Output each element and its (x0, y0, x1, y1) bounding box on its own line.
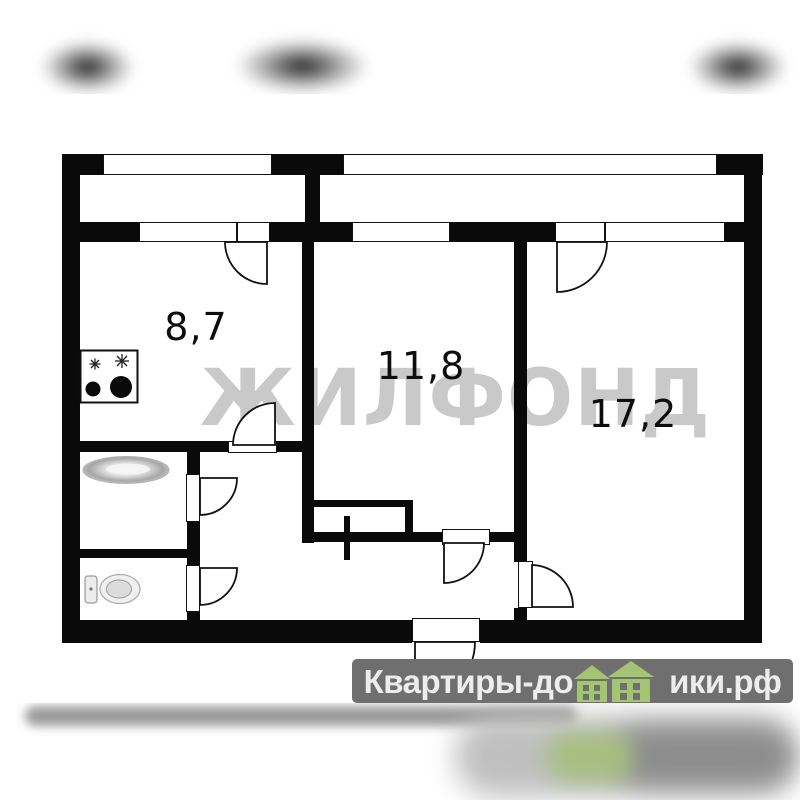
floor-plan-image: ЖИЛФОНД (0, 0, 800, 800)
room-right-area-label: 17,2 (589, 392, 678, 436)
wall-segment (302, 532, 442, 542)
kitchen-balcony-door-swing (225, 242, 267, 284)
wall-segment (717, 154, 763, 175)
toilet-door-swing (200, 568, 237, 605)
closet-wall (308, 500, 412, 507)
wall-segment (187, 522, 200, 566)
logo-text-left: Квартиры-до (364, 665, 573, 698)
house-icon (574, 660, 668, 702)
bathtub-icon (83, 457, 169, 484)
blurred-top-margin (0, 0, 800, 94)
kitchen-window (139, 222, 270, 242)
wall-segment (744, 175, 762, 643)
room-middle-door-swing (444, 543, 484, 583)
blur-blob (40, 40, 135, 94)
balcony-window (103, 154, 272, 175)
wall-segment (187, 443, 200, 475)
wall-segment (277, 441, 314, 452)
wall-segment (62, 441, 228, 452)
toilet-door-leaf (186, 565, 200, 612)
logo-banner: Квартиры-до ики.рф (352, 659, 793, 703)
blur-blob (612, 727, 792, 785)
kitchen-door-sill (228, 441, 277, 453)
wall-segment (270, 222, 352, 242)
wall-segment (490, 532, 527, 542)
wall-segment (62, 620, 412, 643)
closet-wall (405, 500, 413, 542)
wall-segment (80, 222, 139, 242)
wall-segment (725, 222, 744, 242)
wall-segment (450, 222, 555, 242)
blur-blob (235, 38, 370, 94)
wall-segment (514, 242, 527, 562)
room-middle-door-sill (442, 529, 490, 545)
wall-segment (187, 612, 200, 620)
blur-blob (688, 40, 788, 94)
balcony-window (343, 154, 717, 175)
room-right-door-swing (532, 565, 573, 607)
wall-segment (514, 608, 527, 620)
bathroom-door-leaf (186, 474, 200, 522)
kitchen-area-label: 8,7 (164, 305, 227, 349)
wall-segment (62, 154, 80, 643)
room-right-door-leaf (518, 561, 533, 608)
room-right-balcony-door-swing (557, 242, 607, 292)
wall-segment (302, 242, 314, 543)
entrance-door-sill (412, 618, 480, 642)
room-right-window (555, 222, 725, 242)
bathroom-door-swing (200, 478, 237, 515)
logo-text-right: ики.рф (669, 665, 781, 698)
room-middle-area-label: 11,8 (377, 344, 466, 388)
toilet-icon (85, 575, 140, 604)
wall-segment (62, 549, 200, 558)
room-middle-window (352, 222, 450, 242)
wall-segment (480, 620, 762, 643)
blurred-bottom-margin (0, 703, 800, 800)
blur-blob (548, 733, 633, 781)
stove-icon (81, 351, 138, 403)
